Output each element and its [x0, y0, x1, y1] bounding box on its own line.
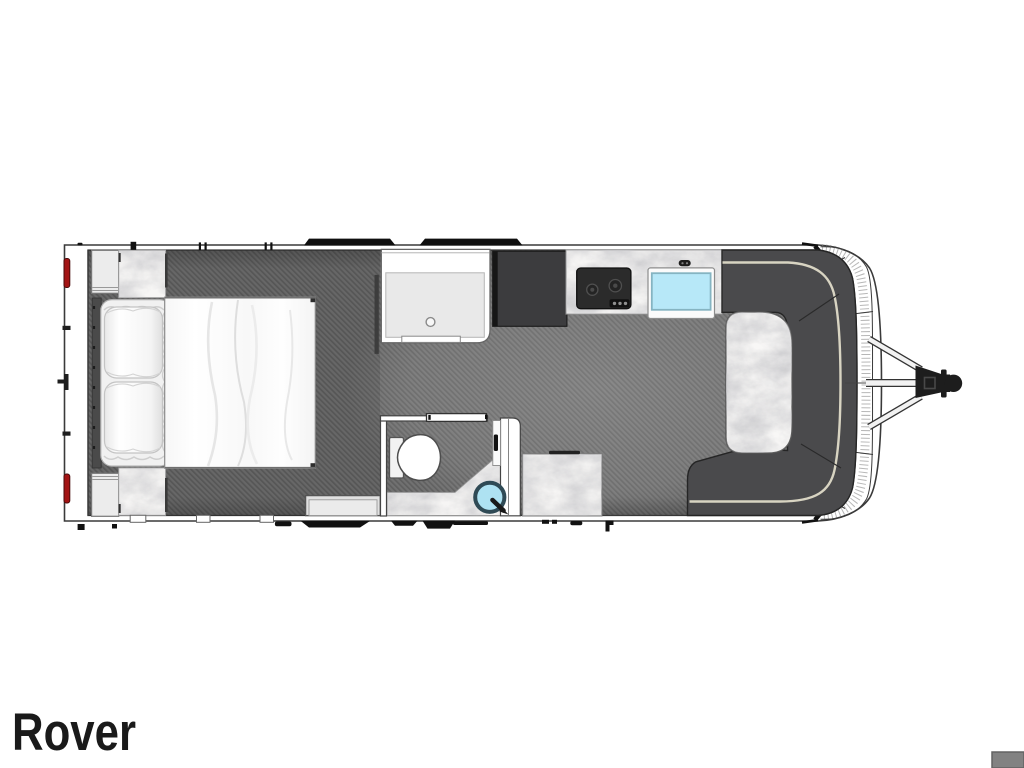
- svg-text:Rover: Rover: [12, 703, 136, 762]
